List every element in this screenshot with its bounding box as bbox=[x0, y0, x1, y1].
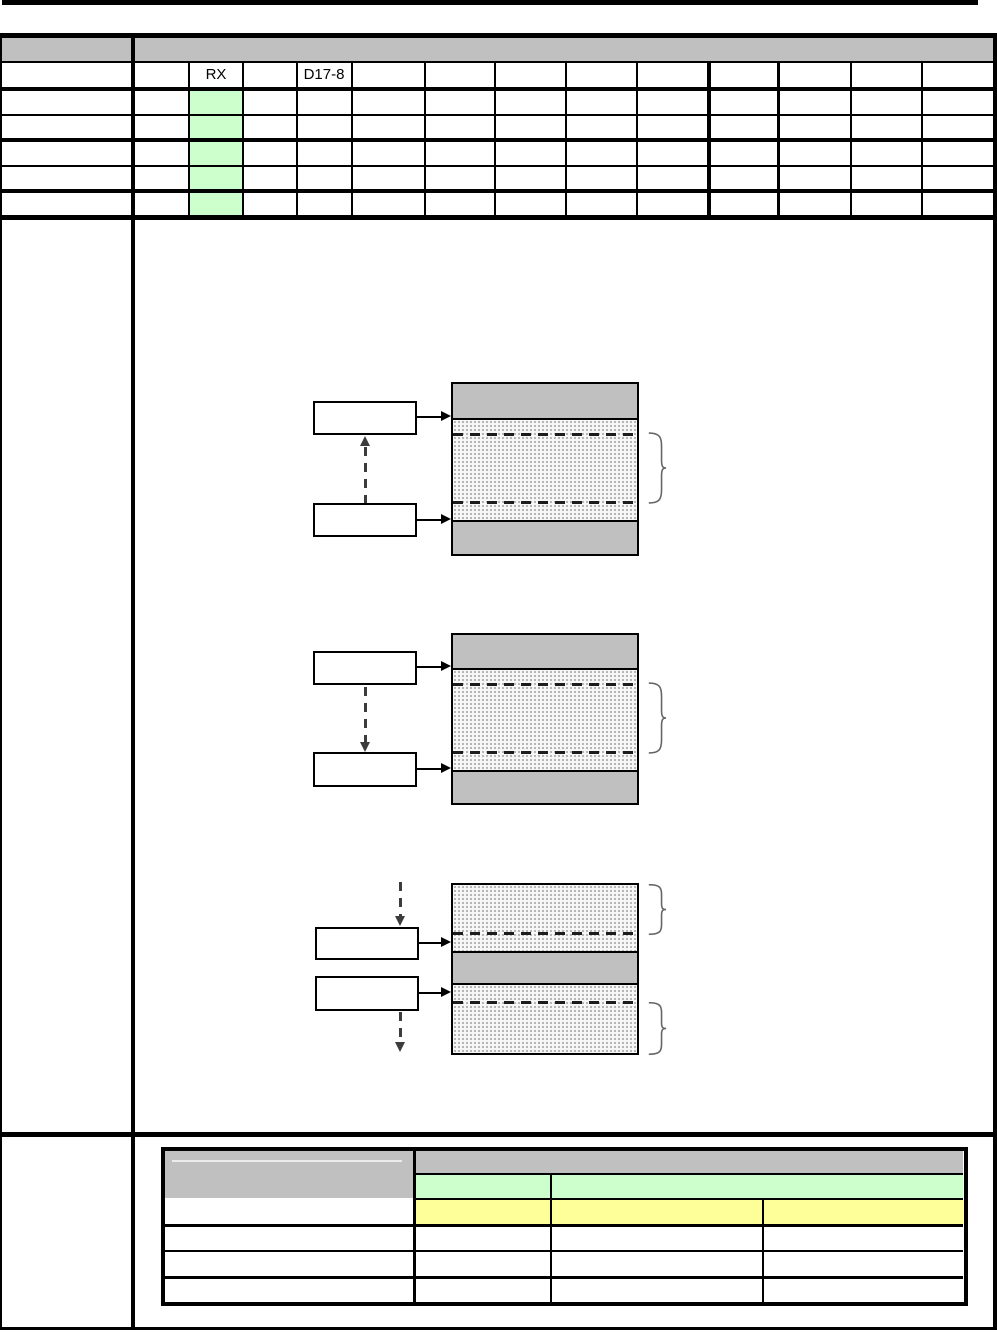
grid-line bbox=[0, 114, 997, 116]
arrow-line bbox=[417, 416, 443, 418]
arrow-right-icon bbox=[441, 987, 451, 997]
arrow-line bbox=[417, 519, 443, 521]
grid-line bbox=[0, 165, 997, 167]
gray-band-bottom bbox=[453, 520, 637, 554]
dashed-boundary-line bbox=[453, 433, 637, 436]
arrow-line bbox=[417, 666, 443, 668]
gray-band-top bbox=[453, 384, 637, 420]
grid-line bbox=[413, 1151, 416, 1302]
memory-map-rect bbox=[451, 633, 639, 805]
rx-column-highlight-cell bbox=[190, 193, 242, 215]
grid-line bbox=[413, 1198, 963, 1200]
grid-line bbox=[0, 189, 997, 193]
arrow-down-icon bbox=[360, 742, 370, 752]
arrow-down-icon bbox=[395, 1042, 405, 1052]
frame-left-border bbox=[0, 33, 2, 1330]
grid-line bbox=[565, 61, 567, 215]
dashed-boundary-line bbox=[453, 501, 637, 504]
grid-line bbox=[921, 61, 923, 215]
section-divider-diagram-bottom bbox=[0, 1132, 997, 1137]
dashed-boundary-line bbox=[453, 751, 637, 754]
curly-brace-icon bbox=[647, 682, 667, 754]
bottom-table-green-cell bbox=[552, 1175, 963, 1198]
dashed-boundary-line bbox=[453, 683, 637, 686]
frame-bottom-border bbox=[0, 1327, 997, 1330]
arrow-right-icon bbox=[441, 937, 451, 947]
grid-line bbox=[707, 61, 711, 215]
bottom-table-yellow-cell bbox=[413, 1200, 550, 1224]
top-table-header-left-cell bbox=[2, 38, 131, 61]
grid-line bbox=[550, 1175, 552, 1302]
bottom-table-green-cell bbox=[413, 1175, 550, 1198]
arrow-right-icon bbox=[441, 763, 451, 773]
grid-line bbox=[636, 61, 638, 215]
rx-column-label: RX bbox=[188, 63, 244, 87]
arrow-up-icon bbox=[360, 436, 370, 446]
pointer-box-lower bbox=[315, 976, 419, 1011]
rx-column-highlight-cell bbox=[190, 91, 242, 114]
grid-line bbox=[850, 61, 852, 215]
rx-column-highlight-cell bbox=[190, 167, 242, 189]
arrow-line bbox=[419, 942, 443, 944]
rx-column-highlight-cell bbox=[190, 142, 242, 165]
gray-band-top bbox=[453, 635, 637, 670]
bottom-table-yellow-cell bbox=[764, 1200, 963, 1224]
stipple-region-bottom bbox=[453, 985, 637, 1053]
dashed-connector bbox=[364, 687, 367, 743]
curly-brace-icon bbox=[647, 884, 667, 935]
pointer-box-lower bbox=[313, 503, 417, 537]
dashed-connector-in bbox=[399, 882, 402, 917]
grid-line bbox=[165, 1224, 963, 1227]
section-divider-top-table-bottom bbox=[0, 215, 997, 220]
arrow-line bbox=[417, 768, 443, 770]
arrow-right-icon bbox=[441, 411, 451, 421]
arrow-down-icon bbox=[395, 916, 405, 926]
bottom-table-header-merged-cell bbox=[165, 1151, 413, 1198]
grid-line bbox=[494, 61, 496, 215]
pointer-box-lower bbox=[313, 752, 417, 787]
curly-brace-icon bbox=[647, 1002, 667, 1055]
memory-map-rect bbox=[451, 382, 639, 556]
grid-line bbox=[424, 61, 426, 215]
top-rule-bar bbox=[2, 0, 978, 5]
grid-line bbox=[165, 1276, 963, 1279]
bottom-table-header-row-cell bbox=[413, 1151, 963, 1173]
pointer-box-upper bbox=[313, 651, 417, 685]
grid-line bbox=[762, 1200, 764, 1302]
grid-line bbox=[413, 1173, 963, 1175]
arrow-line bbox=[419, 992, 443, 994]
header-cell-underline bbox=[172, 1160, 402, 1162]
dashed-connector-out bbox=[399, 1012, 402, 1043]
pointer-box-upper bbox=[315, 927, 419, 960]
dashed-connector bbox=[364, 447, 367, 503]
gray-band-middle bbox=[453, 951, 637, 985]
grid-line bbox=[0, 87, 997, 91]
dashed-boundary-line bbox=[453, 1001, 637, 1004]
d17-8-column-label: D17-8 bbox=[294, 63, 354, 87]
arrow-right-icon bbox=[441, 661, 451, 671]
frame-right-border bbox=[993, 33, 997, 1330]
curly-brace-icon bbox=[647, 432, 667, 504]
dashed-boundary-line bbox=[453, 932, 637, 935]
memory-map-rect bbox=[451, 883, 639, 1055]
pointer-box-upper bbox=[313, 401, 417, 435]
document-page: RX D17-8 bbox=[0, 0, 997, 1332]
arrow-right-icon bbox=[441, 514, 451, 524]
left-column-divider bbox=[131, 33, 135, 1330]
top-table-header-main-cell bbox=[135, 38, 993, 61]
stipple-region-top bbox=[453, 885, 637, 951]
grid-line bbox=[165, 1250, 963, 1252]
grid-line bbox=[0, 61, 997, 63]
grid-line bbox=[777, 61, 780, 215]
gray-band-bottom bbox=[453, 770, 637, 803]
bottom-table-yellow-cell bbox=[552, 1200, 762, 1224]
grid-line bbox=[0, 138, 997, 142]
rx-column-highlight-cell bbox=[190, 116, 242, 138]
